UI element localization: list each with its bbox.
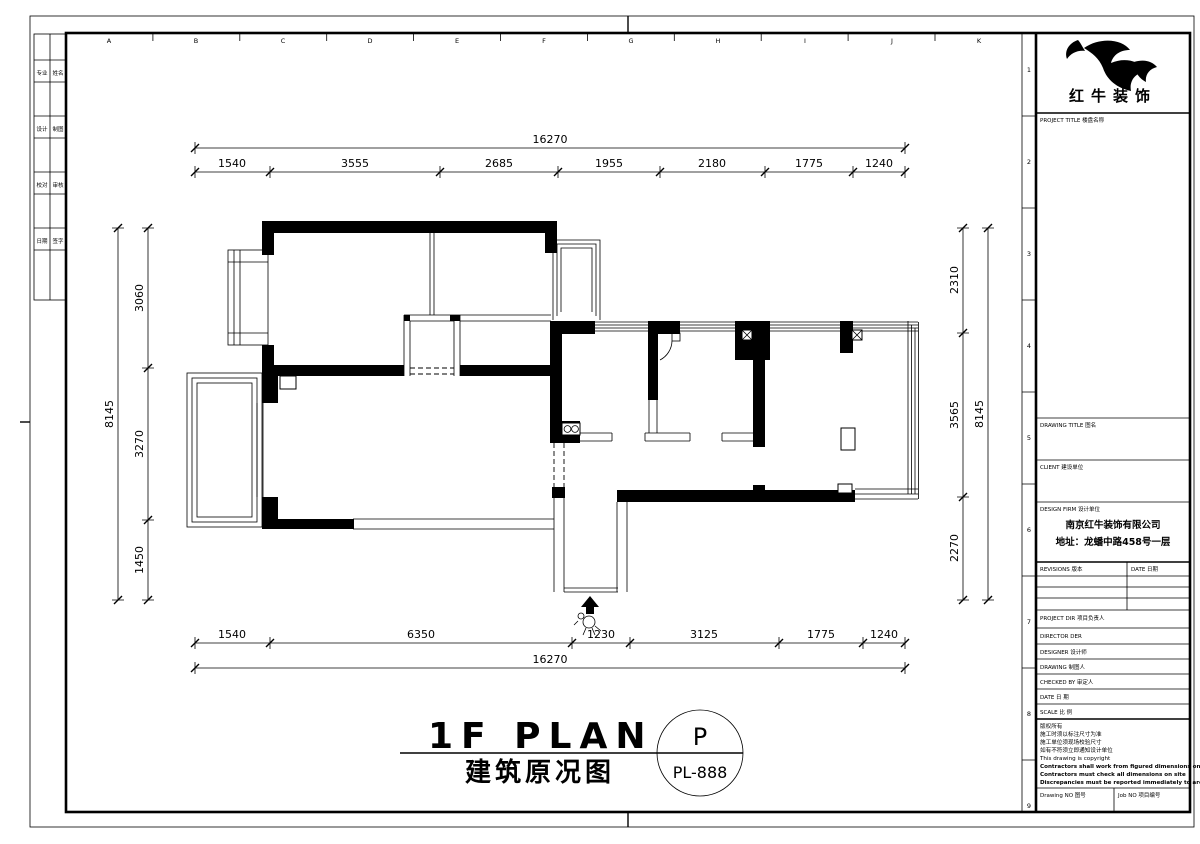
dim-label: 1955 xyxy=(595,157,623,170)
grid-number: 1 xyxy=(1027,66,1031,74)
firm-name: 南京红牛装饰有限公司 xyxy=(1065,519,1160,531)
dimensions-bottom: 1540 6350 1230 3125 1775 1240 16270 xyxy=(191,628,909,674)
dim-label: 1230 xyxy=(587,628,615,641)
drawing-title-block: 1F PLAN 建筑原况图 P PL-888 xyxy=(400,710,743,796)
bubble-code: PL-888 xyxy=(673,763,728,782)
grid-number: 4 xyxy=(1027,342,1031,350)
sign-cell: 日期 xyxy=(36,238,48,245)
revisions-label: REVISIONS 版本 xyxy=(1040,565,1083,573)
copyright-line: 施工单位须现场校验尺寸 xyxy=(1040,738,1102,746)
dim-label: 16270 xyxy=(533,133,568,146)
grid-letter: J xyxy=(890,37,893,45)
grid-number: 2 xyxy=(1027,158,1031,166)
grid-letter: B xyxy=(194,37,198,45)
drawing-title-label: DRAWING TITLE 图名 xyxy=(1040,421,1096,429)
dim-label: 3125 xyxy=(690,628,718,641)
copyright-line: 施工时须以标注尺寸为准 xyxy=(1040,730,1102,738)
dim-label: 1450 xyxy=(133,546,146,574)
sign-cell: 审核 xyxy=(52,181,64,189)
sign-cell: 专业 xyxy=(36,69,48,77)
copyright-line: 如有不符须立即通知设计单位 xyxy=(1040,746,1113,754)
grid-number: 6 xyxy=(1027,526,1031,534)
dim-label: 8145 xyxy=(103,400,116,428)
tb-row-label: CHECKED BY 审定人 xyxy=(1040,678,1094,686)
design-firm-label: DESIGN FIRM 设计单位 xyxy=(1040,505,1101,513)
dim-label: 2310 xyxy=(948,266,961,294)
flue-symbol xyxy=(852,330,862,340)
dim-label: 1540 xyxy=(218,157,246,170)
floor-plan: 16270 1540 3555 2685 1955 2180 1775 1240… xyxy=(103,133,994,674)
drawing-frame xyxy=(20,16,1194,827)
brand-name: 红牛装饰 xyxy=(1069,87,1157,105)
walls xyxy=(262,221,855,529)
firm-address: 地址：龙蟠中路458号一层 xyxy=(1056,536,1171,548)
dim-label: 3555 xyxy=(341,157,369,170)
entry-arrow-icon xyxy=(581,596,599,614)
dim-label: 1240 xyxy=(865,157,893,170)
door-swing xyxy=(660,333,680,360)
drawing-sheet: A B C D E F G H I J K 1 2 3 4 5 6 7 8 9 … xyxy=(0,0,1200,844)
copyright-line: Contractors shall work from figured dime… xyxy=(1040,764,1200,770)
dimensions-left: 8145 3060 3270 1450 xyxy=(103,224,154,604)
title-block: 红牛装饰 PROJECT TITLE 楼盘名称 DRAWING TITLE 图名… xyxy=(1036,40,1200,812)
dim-label: 3060 xyxy=(133,284,146,312)
dim-label: 1240 xyxy=(870,628,898,641)
grid-letter: E xyxy=(455,37,459,45)
grid-number-band: 1 2 3 4 5 6 7 8 9 xyxy=(1022,66,1036,810)
dim-label: 6350 xyxy=(407,628,435,641)
dim-label: 16270 xyxy=(533,653,568,666)
partitions xyxy=(315,233,753,592)
tb-row-label: DESIGNER 设计师 xyxy=(1040,648,1087,656)
grid-number: 7 xyxy=(1027,618,1031,626)
grid-letter: G xyxy=(628,37,633,45)
dim-label: 1775 xyxy=(807,628,835,641)
project-title-label: PROJECT TITLE 楼盘名称 xyxy=(1040,116,1105,124)
grid-number: 5 xyxy=(1027,434,1031,442)
dim-label: 3270 xyxy=(133,430,146,458)
date-col-label: DATE 日期 xyxy=(1131,566,1159,573)
sign-cell: 签字 xyxy=(52,237,64,245)
sign-cell: 制图 xyxy=(52,125,64,133)
plan-title: 1F PLAN xyxy=(428,716,654,757)
grid-letter: D xyxy=(367,37,372,45)
grid-letter-band: A B C D E F G H I J K xyxy=(107,33,982,45)
flue-symbol xyxy=(742,330,752,340)
plan-subtitle: 建筑原况图 xyxy=(465,757,615,788)
dim-label: 3565 xyxy=(948,401,961,429)
grid-number: 9 xyxy=(1027,802,1031,810)
job-no-label: Job NO 项目编号 xyxy=(1117,791,1161,799)
dimensions-right: 2310 3565 2270 8145 xyxy=(948,224,994,604)
bubble-letter: P xyxy=(693,723,707,751)
tb-row-label: SCALE 比 例 xyxy=(1040,708,1073,716)
copyright-line: This drawing is copyright xyxy=(1039,756,1111,762)
dim-label: 8145 xyxy=(973,400,986,428)
tb-row-label: DIRECTOR DER xyxy=(1040,634,1082,640)
sign-cell: 校对 xyxy=(36,181,48,189)
client-label: CLIENT 建设单位 xyxy=(1040,463,1084,471)
sign-strip: 专业 姓名 设计 制图 校对 审核 日期 签字 xyxy=(34,34,66,300)
grid-letter: C xyxy=(281,37,286,45)
tb-row-label: DRAWING 制图人 xyxy=(1040,663,1085,671)
bull-logo-icon xyxy=(1066,40,1157,91)
copyright-line: 版权所有 xyxy=(1040,722,1063,730)
wall-notch xyxy=(838,484,852,493)
copyright-line: Contractors must check all dimensions on… xyxy=(1040,772,1186,778)
grid-letter: K xyxy=(977,37,982,45)
closet-box xyxy=(280,376,296,389)
grid-letter: I xyxy=(804,37,806,45)
sign-cell: 姓名 xyxy=(52,69,63,77)
tb-row-label: PROJECT DIR 项目负责人 xyxy=(1040,614,1105,622)
grid-letter: A xyxy=(107,37,112,45)
dimensions-top: 16270 1540 3555 2685 1955 2180 1775 1240 xyxy=(191,133,909,178)
drawing-no-label: Drawing NO 图号 xyxy=(1040,791,1086,799)
dim-label: 2180 xyxy=(698,157,726,170)
dim-label: 2685 xyxy=(485,157,513,170)
grid-number: 8 xyxy=(1027,710,1031,718)
copyright-note: 版权所有 施工时须以标注尺寸为准 施工单位须现场校验尺寸 如有不符须立即通知设计… xyxy=(1039,722,1200,786)
dim-label: 1540 xyxy=(218,628,246,641)
sign-cell: 设计 xyxy=(36,125,48,133)
dim-label: 1775 xyxy=(795,157,823,170)
column-box xyxy=(841,428,855,450)
grid-number: 3 xyxy=(1027,250,1031,258)
copyright-line: Discrepancies must be reported immediate… xyxy=(1040,780,1200,786)
tb-row-label: DATE 日 期 xyxy=(1040,694,1069,701)
dim-label: 2270 xyxy=(948,534,961,562)
grid-letter: H xyxy=(716,37,721,45)
grid-letter: F xyxy=(542,37,546,45)
